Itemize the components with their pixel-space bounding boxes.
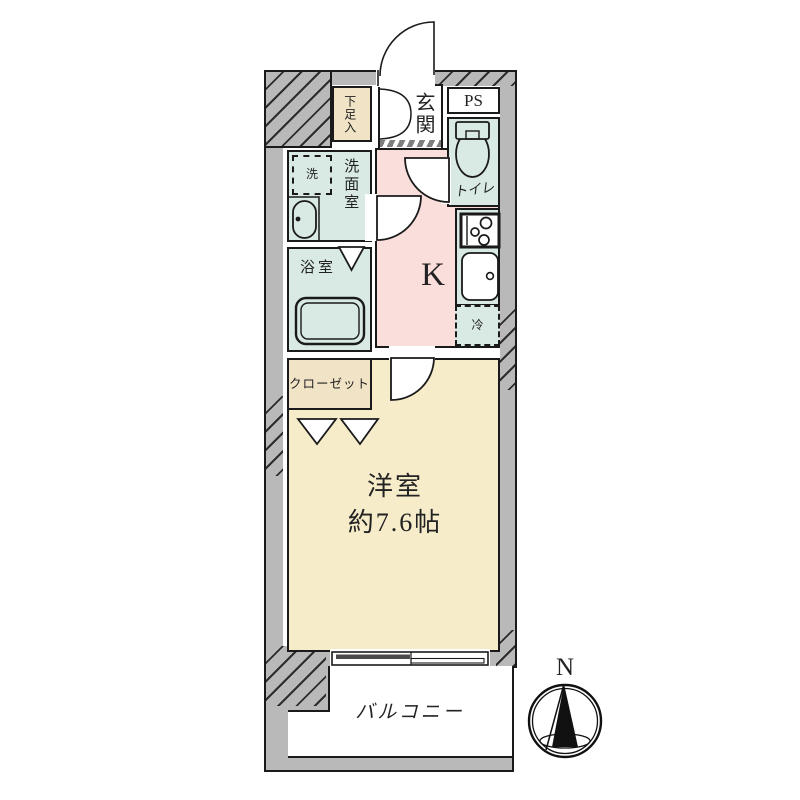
entrance-label: 玄関 <box>411 92 434 144</box>
compass-base-ellipse <box>540 734 590 748</box>
pipe-space-label: PS <box>464 91 483 111</box>
balcony-bottom-wall <box>288 758 514 772</box>
main-room-size: 約7.6帖 <box>300 508 490 538</box>
wall-hatch-left-pillar <box>266 396 283 476</box>
entrance-step-edge <box>380 140 441 147</box>
compass-outer-ring <box>529 685 601 757</box>
kitchen-counter <box>455 208 500 306</box>
shoe-cabinet-label: 下足入 <box>342 90 356 138</box>
bathroom-door-opening <box>340 245 363 251</box>
balcony-window-opening <box>330 649 490 669</box>
compass-north-label: N <box>551 654 579 682</box>
entrance-door-opening <box>376 70 435 87</box>
refrigerator-label: 冷 <box>471 319 483 333</box>
main-room-name: 洋室 <box>300 472 490 502</box>
refrigerator-space: 冷 <box>455 305 500 346</box>
laundry-label: 洗 <box>306 168 318 182</box>
bathroom-label: 浴室 <box>300 260 336 277</box>
wall-hatch-bottom-left <box>266 646 326 706</box>
wall-hatch-top-right <box>435 72 515 86</box>
main-room-label: 洋室 約7.6帖 <box>300 472 490 538</box>
washroom-door-opening <box>365 194 378 241</box>
balcony-label: バルコニー <box>320 700 500 726</box>
laundry-space: 洗 <box>292 155 332 195</box>
compass-needle-icon <box>552 684 578 747</box>
washroom-label: 洗面室 <box>341 158 358 238</box>
toilet-door-opening <box>441 157 451 204</box>
compass-inner-ring <box>533 689 598 754</box>
compass-needle-edge <box>546 684 564 750</box>
entrance-door-arc <box>380 22 434 76</box>
floorplan-canvas: バルコニー K 玄関 下足入 PS トイレ 洗 洗面室 浴室 クローゼット 冷 … <box>0 0 800 800</box>
kitchen-label: K <box>403 253 463 299</box>
pipe-space-box: PS <box>447 87 500 114</box>
wall-hatch-right-pillar <box>500 308 515 390</box>
wall-hatch-top-left <box>266 72 332 148</box>
room-closet-top: クローゼット <box>287 358 372 410</box>
main-room-door-opening <box>389 346 435 360</box>
